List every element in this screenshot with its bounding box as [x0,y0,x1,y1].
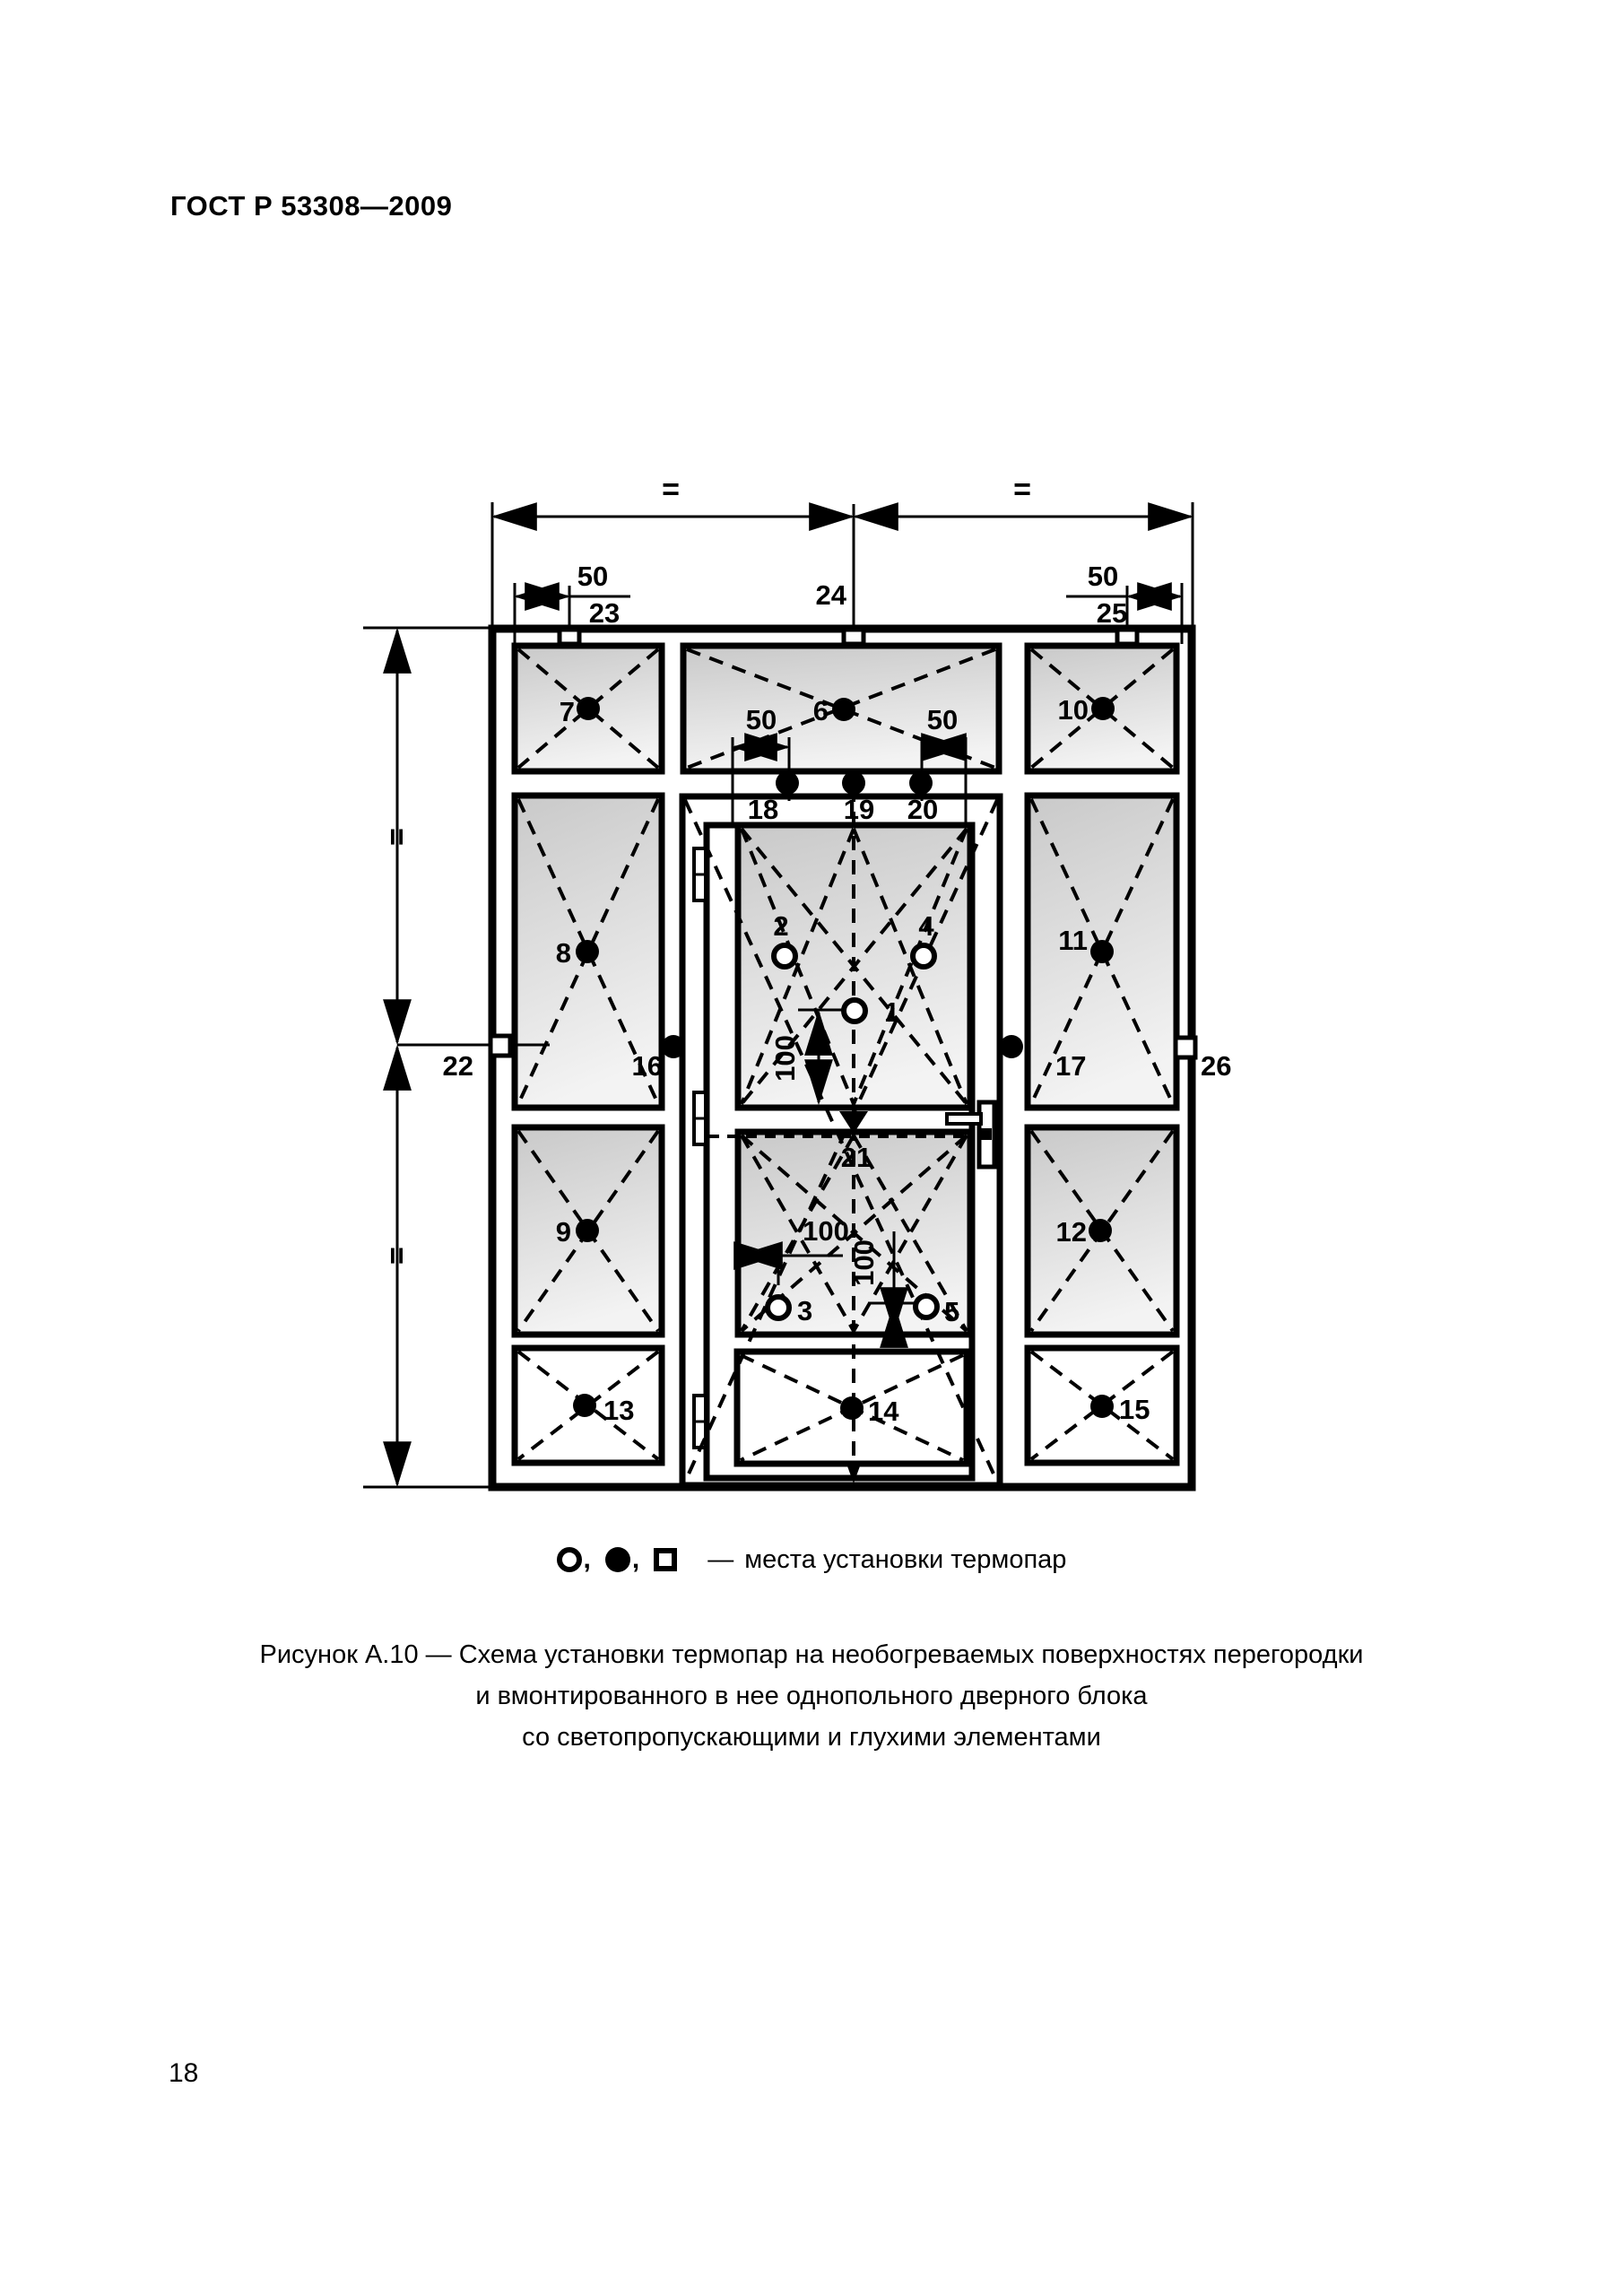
thermocouple-9-icon [576,1219,599,1242]
point-label-16: 16 [632,1050,663,1082]
caption-line-2: и вмонтированного в нее однопольного две… [0,1675,1623,1717]
point-label-15: 15 [1119,1394,1150,1425]
dim-50-top-left: 50 [577,561,608,592]
thermocouple-23-icon [560,630,579,644]
thermocouple-14-icon [840,1396,864,1420]
point-label-22: 22 [443,1050,473,1082]
equal-mark-left-lower: = [379,1247,413,1265]
point-label-12: 12 [1056,1216,1087,1248]
thermocouple-16-icon [662,1035,685,1058]
figure-a10-diagram: = = = = 50 50 50 50 100 100 100 23 24 25… [341,466,1291,1641]
point-label-7: 7 [560,696,575,727]
dim-100-upper: 100 [769,1035,801,1082]
hinge-top-icon [694,848,706,900]
filled-circle-icon [605,1547,630,1572]
figure-caption: Рисунок А.10 — Схема установки термопар … [0,1634,1623,1758]
thermocouple-20-icon [909,771,933,795]
thermocouple-7-icon [577,697,600,720]
thermocouple-3-icon [768,1297,789,1318]
point-label-13: 13 [603,1395,634,1426]
caption-line-3: со светопропускающими и глухими элемента… [0,1717,1623,1758]
partition-structure [492,629,1192,1487]
thermocouple-26-icon [1176,1038,1195,1057]
hinge-middle-icon [694,1092,706,1144]
thermocouple-6-icon [832,698,855,721]
legend-text: места установки термопар [744,1545,1066,1575]
thermocouple-5-icon [916,1296,937,1318]
thermocouple-24-icon [844,630,864,644]
point-label-6: 6 [813,695,829,726]
thermocouple-scheme-svg: = = = = 50 50 50 50 100 100 100 23 24 25… [341,466,1291,1641]
thermocouple-1-icon [844,1000,865,1022]
legend: , , — места установки термопар [0,1544,1623,1575]
legend-dash: — [707,1545,733,1575]
thermocouple-2-icon [774,945,795,967]
legend-comma: , [632,1544,639,1575]
thermocouple-25-icon [1117,630,1137,644]
point-label-23: 23 [589,597,620,629]
point-label-5: 5 [944,1296,959,1327]
legend-comma: , [584,1544,591,1575]
point-label-19: 19 [844,794,874,825]
thermocouple-10-icon [1091,697,1115,720]
point-label-10: 10 [1058,694,1089,726]
caption-line-1: Рисунок А.10 — Схема установки термопар … [0,1634,1623,1675]
open-circle-icon [557,1547,582,1572]
dim-50-top-right: 50 [1088,561,1118,592]
point-label-2: 2 [773,910,788,942]
thermocouple-19-icon [842,771,865,795]
point-label-14: 14 [868,1396,899,1427]
dim-100-lower-vertical: 100 [848,1239,880,1286]
point-label-18: 18 [748,794,778,825]
point-label-8: 8 [556,937,571,969]
point-label-3: 3 [797,1295,812,1326]
thermocouple-8-icon [576,940,599,963]
dim-100-lower-horizontal: 100 [803,1215,849,1247]
document-header: ГОСТ Р 53308—2009 [170,190,452,222]
equal-mark-left-upper: = [379,828,413,846]
thermocouple-4-icon [913,945,934,967]
point-label-20: 20 [907,794,938,825]
page-number: 18 [169,2058,198,2089]
point-label-1: 1 [884,996,899,1028]
equal-mark-top-left: = [662,473,680,507]
point-label-24: 24 [816,579,847,611]
thermocouple-12-icon [1089,1219,1112,1242]
thermocouple-22-icon [490,1036,510,1056]
open-square-icon [654,1548,677,1571]
thermocouple-15-icon [1090,1395,1114,1418]
thermocouple-13-icon [573,1394,596,1417]
point-label-21: 21 [841,1142,872,1173]
point-label-9: 9 [556,1216,571,1248]
thermocouple-17-icon [1000,1035,1023,1058]
point-label-11: 11 [1058,925,1088,956]
point-label-4: 4 [918,910,934,942]
dim-50-transom-right: 50 [927,704,958,735]
point-label-17: 17 [1055,1050,1086,1082]
thermocouple-11-icon [1090,940,1114,963]
thermocouple-18-icon [776,771,799,795]
dim-50-transom-left: 50 [746,704,777,735]
equal-mark-top-right: = [1013,473,1031,507]
point-label-26: 26 [1201,1050,1231,1082]
point-label-25: 25 [1097,597,1127,629]
